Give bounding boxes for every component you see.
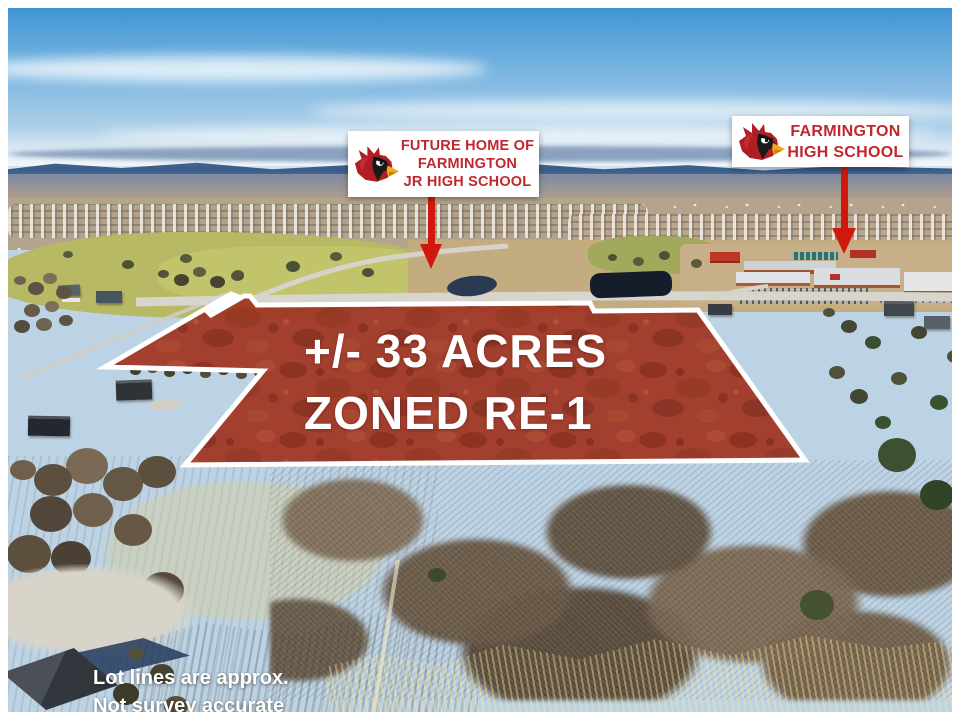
- arrow-high-school-icon: [832, 167, 856, 254]
- lake: [590, 271, 673, 299]
- parcel-acres-text: +/- 33 ACRES: [304, 320, 704, 382]
- disclaimer-line1: Lot lines are approx.: [93, 664, 289, 692]
- parcel-zoning-text: ZONED RE-1: [304, 382, 704, 444]
- parcel-label: +/- 33 ACRES ZONED RE-1: [304, 320, 704, 444]
- sign-jr-high-line2: FARMINGTON: [400, 155, 535, 173]
- cardinal-logo-icon: [352, 137, 400, 191]
- cardinal-logo-icon: [736, 119, 786, 164]
- sign-high-school-line2: HIGH SCHOOL: [786, 142, 905, 163]
- aerial-photo: FUTURE HOME OF FARMINGTON JR HIGH SCHOOL…: [8, 8, 952, 712]
- sign-jr-high: FUTURE HOME OF FARMINGTON JR HIGH SCHOOL: [348, 131, 539, 197]
- sign-jr-high-line3: JR HIGH SCHOOL: [400, 173, 535, 191]
- sign-high-school-line1: FARMINGTON: [786, 121, 905, 142]
- disclaimer: Lot lines are approx. Not survey accurat…: [93, 664, 289, 712]
- sign-high-school: FARMINGTON HIGH SCHOOL: [732, 116, 909, 167]
- arrow-jr-high-icon: [420, 197, 442, 269]
- sign-jr-high-line1: FUTURE HOME OF: [400, 137, 535, 155]
- listing-photo-frame: FUTURE HOME OF FARMINGTON JR HIGH SCHOOL…: [0, 0, 960, 720]
- disclaimer-line2: Not survey accurate: [93, 692, 289, 712]
